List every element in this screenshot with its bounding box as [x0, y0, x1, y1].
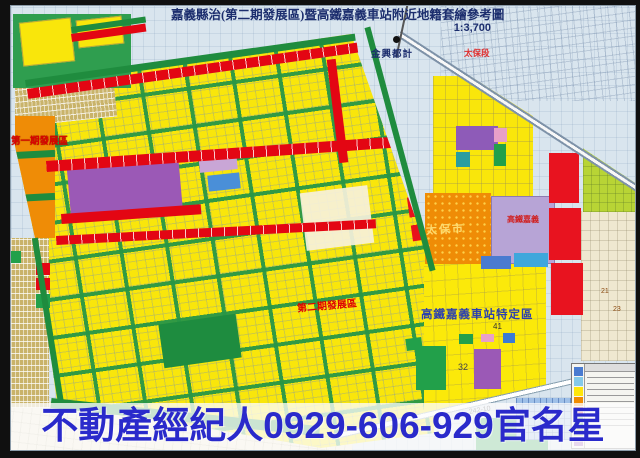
purple-block-south — [474, 349, 501, 389]
farm-parcels-east — [581, 211, 635, 361]
realtor-banner: 不動產經紀人0929-606-929官名星 — [11, 403, 635, 450]
parcel-number-23: 23 — [613, 306, 621, 314]
taibao-section-label: 太保段 — [464, 49, 490, 58]
cyan-block — [514, 253, 548, 267]
hsr-district-label: 高鐵嘉義車站特定區 — [421, 309, 534, 322]
map-screenshot: 嘉義縣治(第二期發展區)暨高鐵嘉義車站附近地籍套繪參考圖 1:3,700 金興都… — [0, 0, 640, 458]
pink-block — [481, 334, 494, 342]
taibao-city-watermark: 太保市 — [426, 223, 466, 237]
purple-block-east — [456, 126, 498, 150]
map-scale: 1:3,700 — [431, 22, 491, 34]
jinxing-plan-label: 金興都計 — [371, 50, 413, 60]
park-block — [158, 314, 241, 368]
hsr-district-number: 41 — [493, 323, 502, 332]
legend-swatch — [574, 387, 583, 396]
small-green-block — [494, 144, 506, 166]
blue-block — [503, 333, 515, 343]
red-zone-block — [549, 208, 581, 260]
pale-parcel-patch — [300, 185, 375, 251]
map-title: 嘉義縣治(第二期發展區)暨高鐵嘉義車站附近地籍套繪參考圖 — [171, 9, 504, 23]
realtor-banner-text: 不動產經紀人0929-606-929官名星 — [41, 405, 604, 446]
teal-block — [456, 152, 470, 167]
map-canvas: 嘉義縣治(第二期發展區)暨高鐵嘉義車站附近地籍套繪參考圖 1:3,700 金興都… — [10, 5, 636, 451]
red-zone-block — [551, 263, 583, 315]
small-green-block — [459, 334, 473, 344]
parcel-number-32: 32 — [458, 363, 468, 373]
pink-block — [494, 128, 507, 142]
small-green-block — [11, 251, 21, 263]
red-zone-block — [549, 153, 579, 203]
park-block — [416, 346, 446, 390]
station-icon — [393, 36, 400, 43]
parcel-block — [19, 17, 75, 66]
blue-block — [207, 172, 240, 191]
legend-swatch — [574, 377, 583, 386]
phase1-label: 第一期發展區 — [11, 137, 68, 147]
hsr-chiayi-block-label: 高鐵嘉義 — [499, 216, 547, 225]
parcel-number-21: 21 — [601, 288, 609, 296]
blue-block — [481, 256, 511, 269]
legend-swatch — [574, 367, 583, 376]
